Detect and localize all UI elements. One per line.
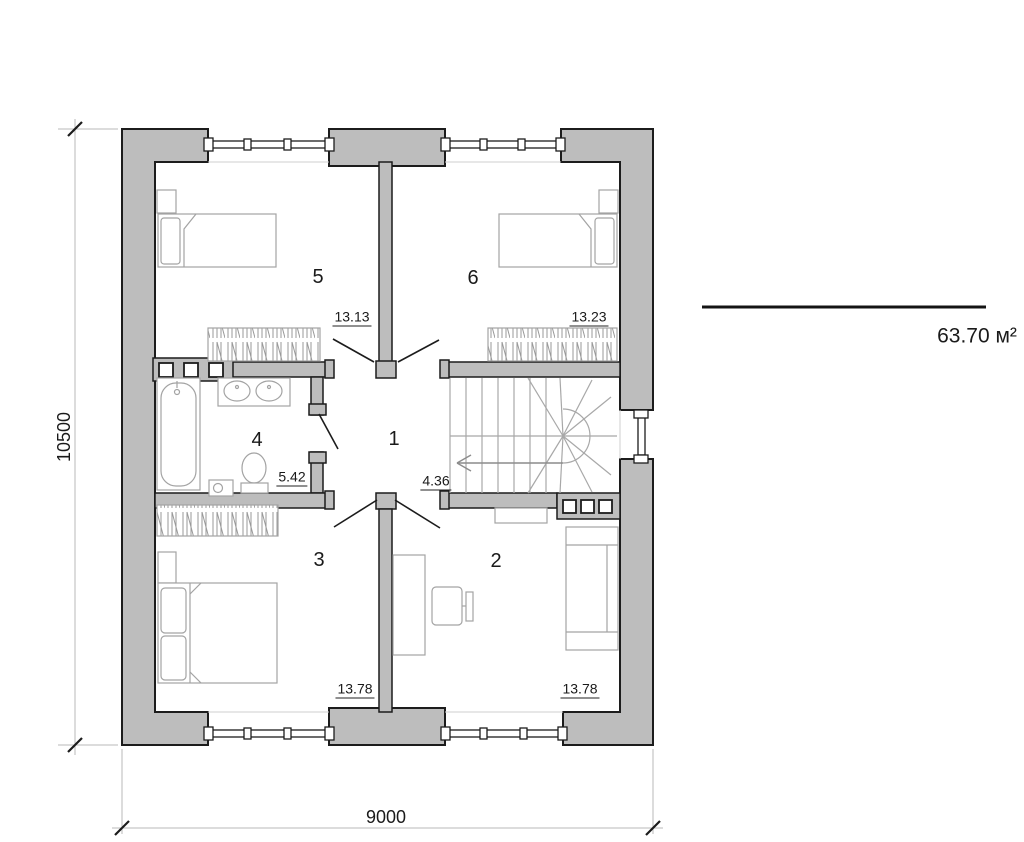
wardrobe: [157, 505, 278, 536]
room-4-area: 5.42: [276, 470, 307, 487]
stair-walk-line: [457, 455, 563, 471]
chair-back: [466, 592, 473, 621]
floor-plan-drawing: [0, 0, 1024, 842]
door-room5: [333, 339, 374, 362]
window-mullion: [325, 138, 334, 151]
floor-plan: 5 13.13 6 13.23 1 4.36 4 5.42 3 13.78 2 …: [0, 0, 1024, 842]
window-mullion: [634, 455, 648, 463]
window-bottom-left: [204, 727, 334, 740]
room3-furniture: [157, 505, 278, 683]
window-mullion: [480, 139, 487, 150]
door-room3: [334, 500, 377, 527]
window-top-left: [204, 138, 334, 151]
faucet: [175, 390, 180, 395]
window-mullion: [634, 410, 648, 418]
sink: [224, 381, 250, 401]
room-5-area: 13.13: [332, 310, 371, 327]
total-area-label: 63.70 м²: [937, 326, 1017, 347]
wall-divider-rooms-5-6: [379, 162, 392, 362]
pillow: [161, 218, 180, 264]
stair-arrow: [457, 463, 471, 471]
pillow: [161, 636, 186, 680]
toilet-tank: [241, 483, 268, 493]
nightstand: [157, 190, 176, 213]
room5-furniture: [157, 190, 320, 361]
window-mullion: [556, 138, 565, 151]
window-mullion: [284, 139, 291, 150]
room-2-number: 2: [490, 551, 501, 571]
stair-winder: [563, 436, 611, 475]
dimension-width: 9000: [366, 808, 406, 826]
room-4-number: 4: [251, 430, 262, 450]
window-bottom-right: [441, 727, 567, 740]
window-mullion: [244, 139, 251, 150]
stair-winder: [563, 436, 592, 492]
nightstand: [599, 190, 618, 213]
wardrobe: [488, 328, 617, 361]
window-mullion: [204, 727, 213, 740]
door-room2: [395, 500, 440, 528]
sink-tap: [268, 386, 271, 389]
room-3-area: 13.78: [335, 682, 374, 699]
room-6-number: 6: [467, 268, 478, 288]
bathtub-inner: [161, 383, 196, 486]
pillow: [595, 218, 614, 264]
staircase: [450, 378, 617, 493]
pillow: [161, 588, 186, 633]
window-mullion: [520, 728, 527, 739]
room-6-area: 13.23: [569, 310, 608, 327]
washer-door: [214, 484, 223, 493]
window-mullion: [284, 728, 291, 739]
wardrobe: [208, 328, 320, 361]
window-mullion: [558, 727, 567, 740]
stair-winder: [563, 397, 611, 436]
room-1-area: 4.36: [420, 474, 451, 491]
window-mullion: [325, 727, 334, 740]
dimension-height: 10500: [55, 412, 73, 462]
bathroom-fixtures: [157, 378, 290, 496]
wall-stairs-top: [444, 362, 620, 377]
flue-square: [599, 500, 612, 513]
room-5-number: 5: [312, 267, 323, 287]
window-mullion: [480, 728, 487, 739]
window-mullion: [518, 139, 525, 150]
door-jamb: [325, 491, 334, 509]
nightstand: [158, 552, 176, 583]
window-mullion: [441, 138, 450, 151]
wall-top-center-pier: [329, 129, 445, 166]
stair-winder: [563, 380, 592, 436]
room2-furniture: [393, 508, 618, 655]
flue-square: [184, 363, 198, 377]
desk: [393, 555, 425, 655]
door-pier-bottom: [376, 493, 396, 509]
flue-square: [563, 500, 576, 513]
wall-bottom-center-pier: [329, 708, 445, 745]
flue-square: [209, 363, 223, 377]
window-right-stairs: [634, 410, 648, 463]
window-mullion: [441, 727, 450, 740]
dresser: [495, 508, 547, 523]
door-jamb: [440, 360, 449, 378]
toilet-bowl: [242, 453, 266, 483]
door-jamb: [309, 404, 326, 415]
wall-divider-rooms-3-2: [379, 509, 392, 712]
sink-tap: [236, 386, 239, 389]
door-jamb: [309, 452, 326, 463]
room6-furniture: [488, 190, 618, 361]
flue-square: [159, 363, 173, 377]
room-3-number: 3: [313, 550, 324, 570]
flue-square: [581, 500, 594, 513]
sink: [256, 381, 282, 401]
door-room6: [398, 340, 439, 362]
door-jamb: [325, 360, 334, 378]
wall-stairs-bottom: [444, 493, 557, 508]
stair-winder: [560, 378, 563, 436]
window-mullion: [204, 138, 213, 151]
room-2-area: 13.78: [560, 682, 599, 699]
door-bathroom: [319, 414, 338, 449]
door-jamb: [440, 491, 449, 509]
room-1-number: 1: [388, 429, 399, 449]
window-mullion: [244, 728, 251, 739]
stair-winder: [560, 436, 563, 493]
door-pier-top: [376, 361, 396, 378]
chair: [432, 587, 462, 625]
window-top-right: [441, 138, 565, 151]
stair-arrow: [457, 455, 471, 463]
